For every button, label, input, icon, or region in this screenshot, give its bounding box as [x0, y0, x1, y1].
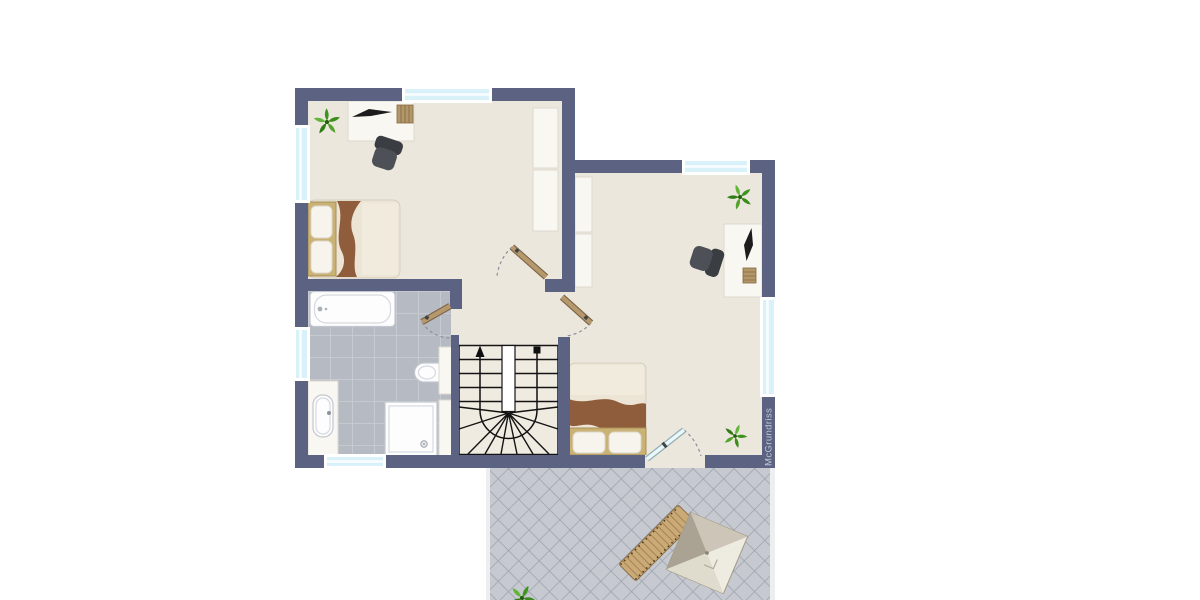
- tall-cabinet: [439, 347, 452, 394]
- window: [324, 454, 386, 469]
- wall-pillar: [545, 279, 575, 292]
- wall-room-divider: [562, 88, 575, 292]
- terrace-edge-right: [770, 468, 775, 600]
- watermark-text: McGrundriss: [764, 408, 775, 466]
- stair-spine: [502, 346, 515, 412]
- single-bed: [308, 200, 400, 278]
- wall-stairs-east: [558, 337, 570, 455]
- window: [293, 125, 310, 203]
- window: [760, 297, 777, 397]
- desk: [724, 224, 762, 297]
- tall-cabinet: [439, 400, 452, 457]
- bathtub: [310, 292, 395, 327]
- walk-line-start-marker: [534, 347, 541, 354]
- washbasin-counter: [308, 381, 338, 457]
- window: [402, 86, 492, 103]
- floor-plan-svg: McGrundriss: [0, 0, 1200, 600]
- window: [682, 158, 750, 175]
- shower: [385, 402, 437, 456]
- staircase: [459, 346, 558, 455]
- terrace-edge-left: [486, 468, 490, 600]
- window: [293, 327, 310, 381]
- toilet: [415, 363, 442, 382]
- wardrobe: [575, 177, 592, 232]
- wardrobe: [575, 234, 592, 287]
- wall-bedroom-left-south: [295, 279, 462, 291]
- double-bed: [569, 363, 646, 455]
- wall-bathroom-stub: [450, 279, 462, 309]
- books: [743, 268, 756, 283]
- wardrobe: [533, 108, 558, 168]
- wall-bathroom-east: [451, 335, 459, 455]
- books: [397, 105, 413, 123]
- floor-plan-image: McGrundriss: [0, 0, 1200, 600]
- wardrobe: [533, 170, 558, 231]
